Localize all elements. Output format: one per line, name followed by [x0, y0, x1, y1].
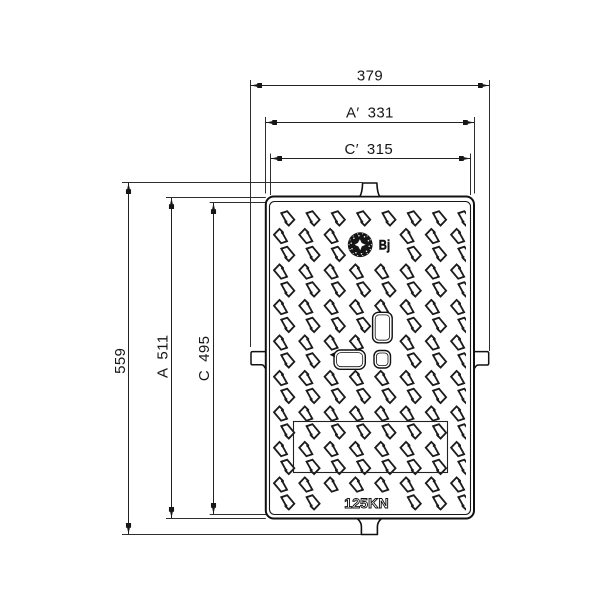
svg-text:A 511: A 511: [155, 335, 172, 379]
svg-text:C 495: C 495: [196, 336, 213, 381]
svg-text:125KN: 125KN: [344, 495, 389, 511]
svg-text:Bj: Bj: [379, 237, 390, 253]
svg-text:379: 379: [357, 68, 383, 85]
svg-text:C′ 315: C′ 315: [344, 141, 393, 158]
svg-text:559: 559: [112, 348, 129, 374]
svg-text:A′ 331: A′ 331: [346, 104, 394, 121]
